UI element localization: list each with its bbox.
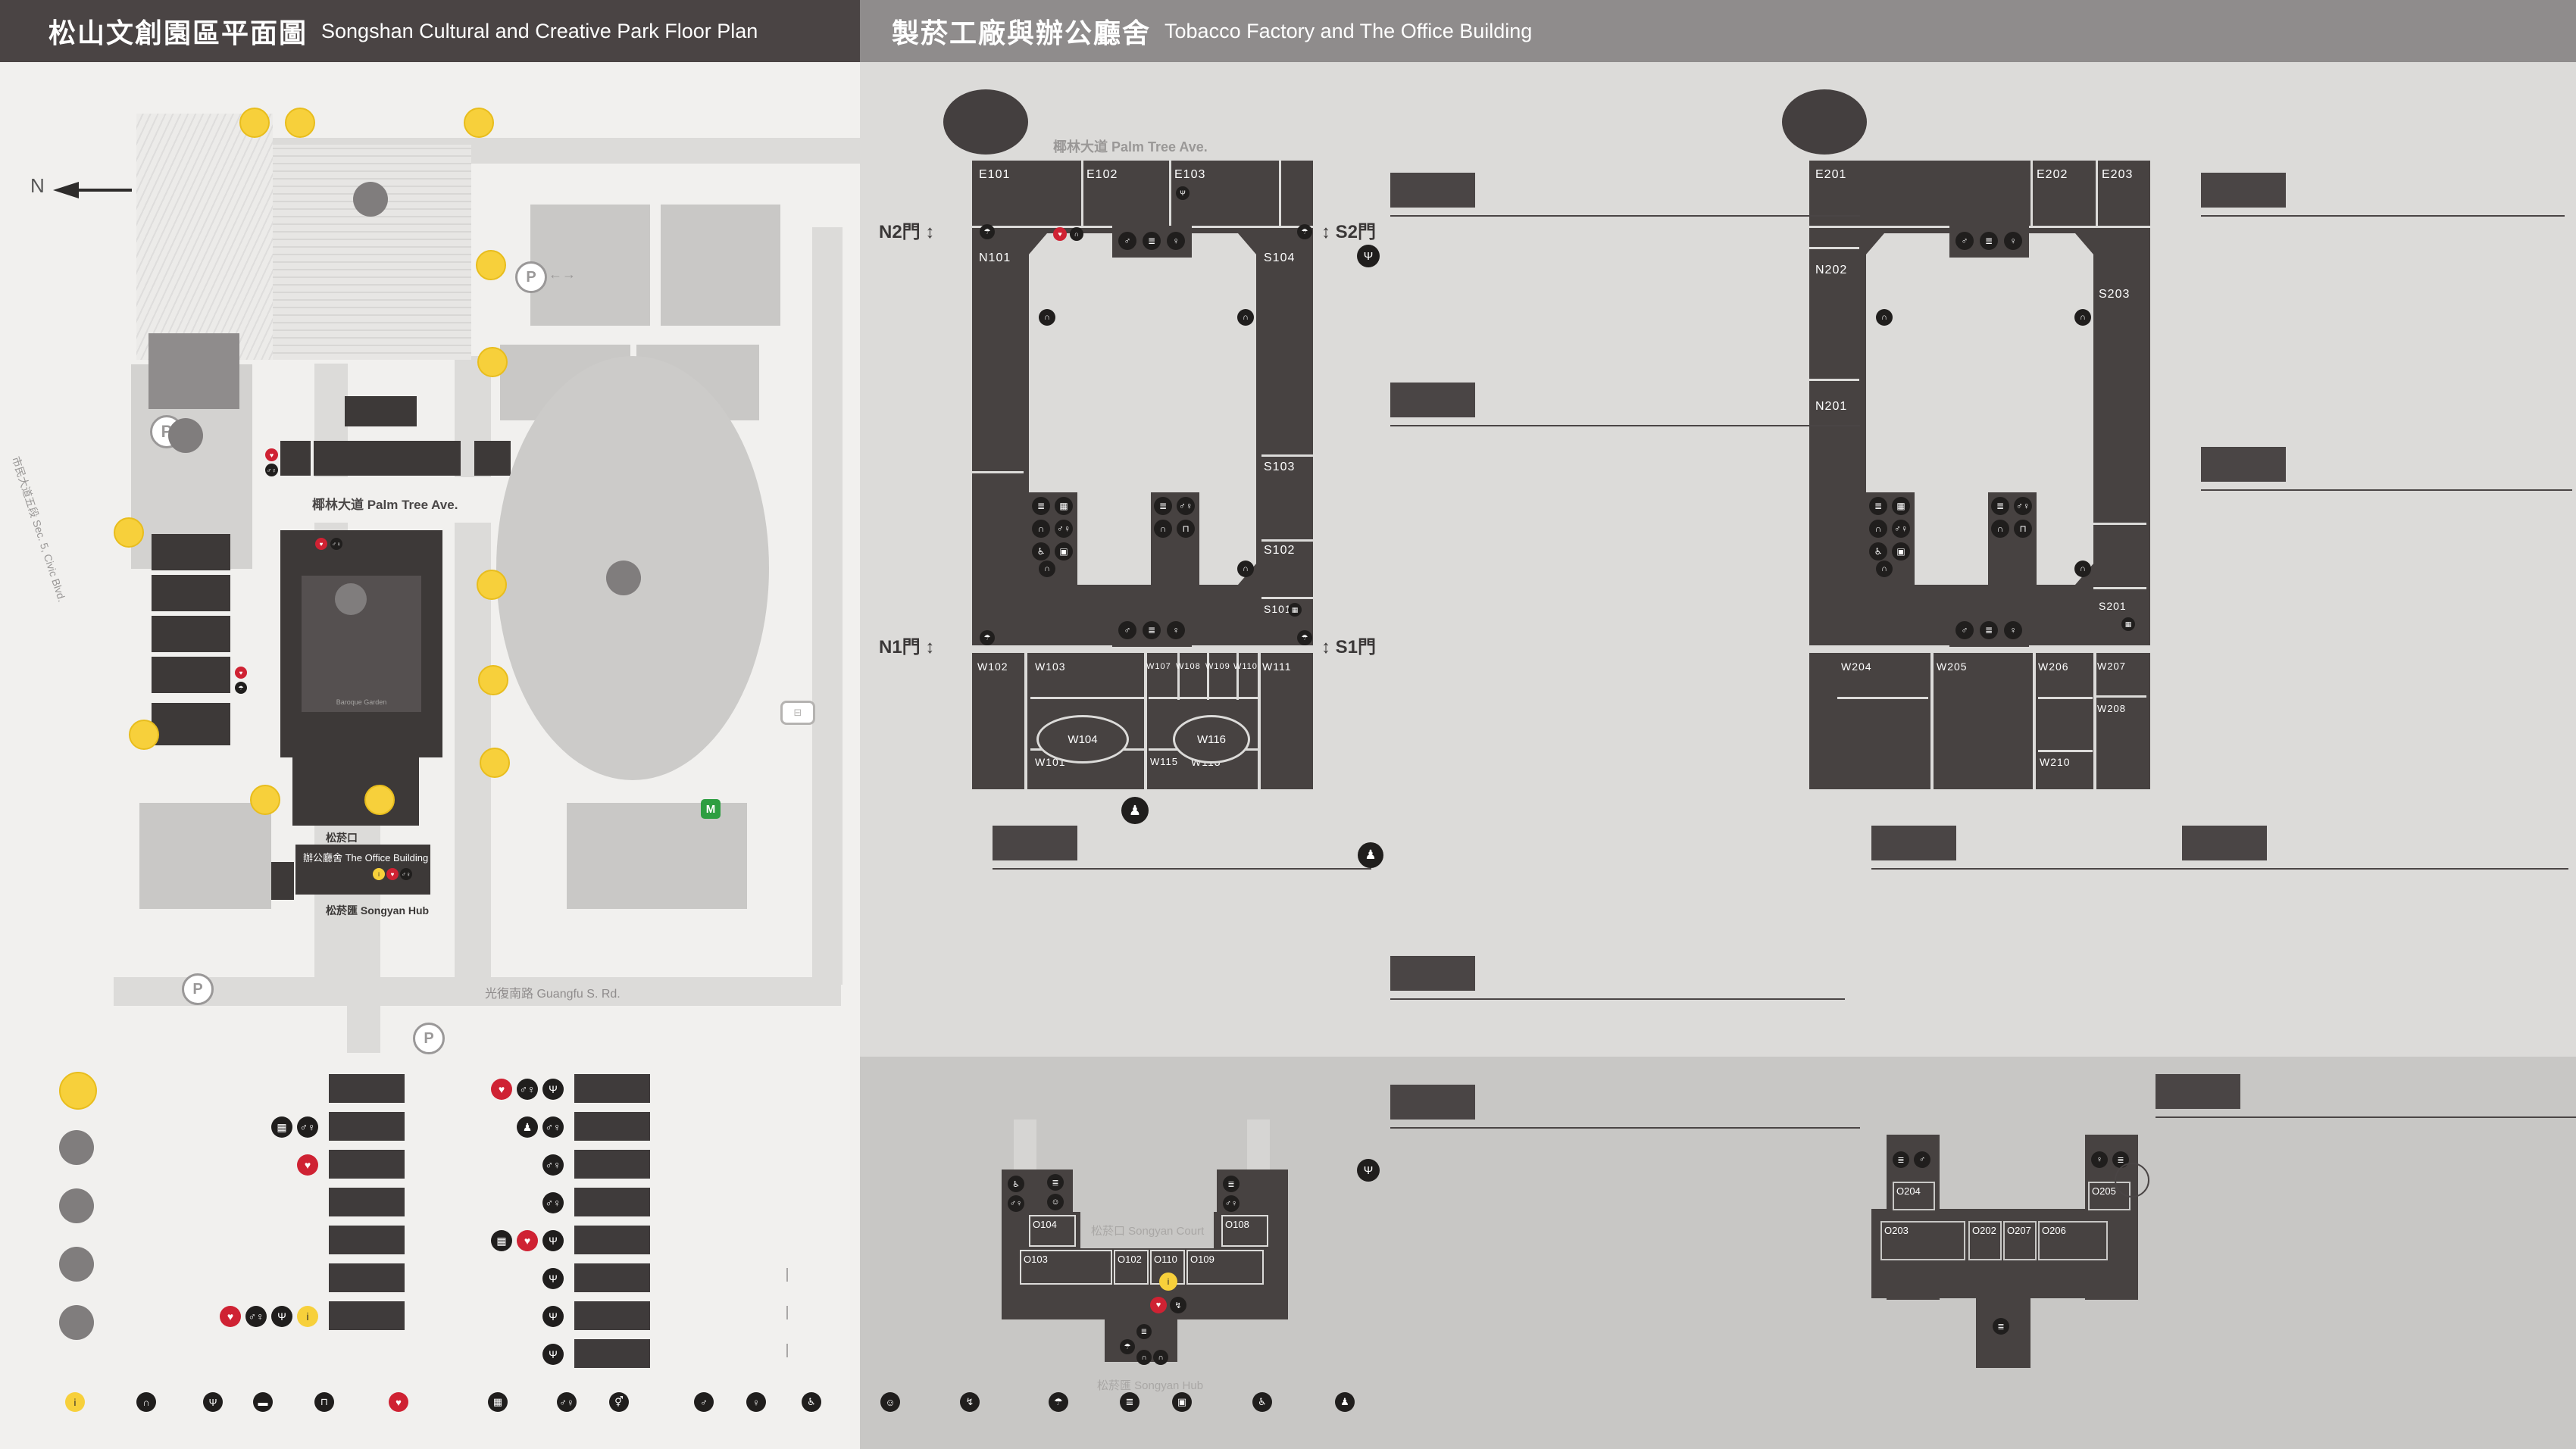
section-divider [1871, 868, 2190, 870]
accessible-toilet-icon: ♿ [1008, 1176, 1024, 1192]
section-divider [2201, 489, 2572, 491]
entry-code [1390, 521, 1519, 523]
entry-code [1390, 451, 1519, 453]
legend-box-A7W [574, 1112, 650, 1141]
toilet-icon: ♂♀ [1177, 497, 1195, 515]
accessible-toilet-icon: ♿ [802, 1392, 821, 1412]
room-W102: W102 [977, 660, 1008, 673]
plan-divider [1261, 539, 1313, 542]
womens-toilet-icon: ♀ [1167, 621, 1185, 639]
section-header [1390, 956, 1845, 991]
legend-bld-note-sep: ｜ [780, 1341, 794, 1360]
accessible-toilet-icon: ♿ [1032, 542, 1050, 561]
baggage-lockers-icon: ▦ [1892, 497, 1910, 515]
a6f2-room-O207: O207 [2003, 1221, 2037, 1260]
showtime-block [139, 803, 271, 909]
guangfu-label: 光復南路 Guangfu S. Rd. [485, 983, 621, 1001]
entry-code [1390, 1012, 1489, 1014]
section-header [2201, 447, 2572, 482]
toilet-icon: ♂♀ [400, 868, 412, 880]
entry-code [1390, 475, 1519, 477]
map-building-a2 [152, 657, 230, 693]
section-badge [1871, 826, 1956, 860]
room-S104: S104 [1264, 251, 1295, 265]
street-palm-1f: 椰林大道 Palm Tree Ave. [1053, 136, 1208, 156]
section-a6-1f: Ψ [1390, 1085, 1860, 1180]
mens-toilet-icon: ♂ [1914, 1151, 1930, 1168]
room-W103: W103 [1035, 660, 1066, 673]
legend-box-A8 [574, 1226, 650, 1254]
list-entry-W204–206 [2201, 503, 2572, 505]
list-entry-W101–103 [1390, 439, 1860, 441]
title-right-zh: 製菸工廠與辦公廳舍 [892, 11, 1151, 51]
plan-divider [1261, 597, 1313, 599]
legend-pin-a [59, 1130, 94, 1165]
room-W204: W204 [1841, 660, 1872, 673]
plan-divider [1081, 161, 1083, 226]
room-S201: S201 [2099, 600, 2127, 612]
compass-arrow-icon [53, 182, 79, 198]
entry-code [1871, 893, 1970, 895]
room-W110: W110 [1233, 662, 1258, 671]
plan-divider [1030, 697, 1144, 699]
room-W205: W205 [1937, 660, 1968, 673]
room-N202: N202 [1815, 264, 1847, 277]
legend-box-A2 [329, 1150, 405, 1179]
information-icon: i [65, 1392, 85, 1412]
gate-n2: N2門 ↕ [879, 217, 934, 243]
mini-trips-icon: ♟ [517, 1116, 538, 1138]
audio-tour-icon: ∩ [1070, 227, 1083, 241]
list-entry-W111 [1390, 497, 1860, 499]
section-badge [1390, 173, 1475, 208]
a6f1-slot-right [1247, 1120, 1270, 1173]
womens-toilet-icon: ♀ [2004, 232, 2022, 250]
entry-code [2156, 1130, 2284, 1132]
breastfeeding-room-icon: ☺ [880, 1392, 900, 1412]
legend-box-A3 [329, 1188, 405, 1216]
list-entry-W207 [2201, 516, 2572, 518]
room-W104: W104 [1036, 715, 1129, 764]
aed-icon: ♥ [386, 868, 399, 880]
room-W115: W115 [1150, 756, 1178, 767]
compass: N [30, 174, 152, 197]
floor-badge-1f [943, 89, 1028, 155]
list-entry-N101 [1390, 1012, 1845, 1014]
section-header [2201, 173, 2565, 208]
plan-divider [1279, 161, 1281, 226]
womens-toilet-icon: ♀ [2004, 621, 2022, 639]
plan-divider [2033, 653, 2036, 789]
gov-building-2 [661, 205, 780, 326]
section-a7-s [993, 826, 1371, 921]
list-entry-W210 [2201, 529, 2572, 531]
section-divider [1390, 998, 1845, 1000]
stairs-icon: ≣ [1136, 1324, 1152, 1339]
pin-c [353, 182, 388, 217]
room-W107: W107 [1146, 662, 1171, 671]
aed-icon: ♥ [265, 448, 278, 461]
a6f2-room-O206: O206 [2038, 1221, 2108, 1260]
map-building-a3 [152, 616, 230, 652]
title-left-en: Songshan Cultural and Creative Park Floo… [321, 20, 758, 43]
room-E203: E203 [2102, 168, 2133, 182]
section-header [1390, 383, 1860, 417]
room-S102: S102 [1264, 544, 1295, 557]
facility-accessible-toilet: ♿ [802, 1392, 827, 1412]
a6f2-room-O202: O202 [1968, 1221, 2002, 1260]
entry-code [2182, 893, 2281, 895]
a6f1-entry-O110 [1390, 1172, 1860, 1174]
toilet-icon: ♂♀ [517, 1079, 538, 1100]
map-building-a9 [314, 441, 461, 476]
facility-power-bank: ↯ [960, 1392, 985, 1412]
map-songyan-hub: 松菸匯 Songyan Hub [326, 903, 429, 918]
room-E202: E202 [2037, 168, 2068, 182]
parking-icon: P [182, 973, 214, 1005]
entrance-12 [480, 748, 510, 778]
legend-box-A5 [329, 1263, 405, 1292]
audio-tour-icon: ∩ [1237, 309, 1254, 326]
f-and-b-icon: Ψ [1357, 1159, 1380, 1182]
list-entry-W116 [1390, 521, 1860, 523]
list-entry-E202 [2201, 245, 2565, 247]
f-and-b-icon: Ψ [542, 1344, 564, 1365]
list-entry-E103: Ψ [1390, 243, 1860, 245]
pin-b [168, 418, 203, 453]
f-and-b-icon: Ψ [1176, 186, 1190, 200]
a6f1-entry-O109 [1390, 1163, 1860, 1166]
plan-divider [1236, 653, 1239, 700]
plan-divider [1144, 653, 1147, 789]
plan-divider [1149, 697, 1258, 699]
plan-divider [972, 471, 1024, 473]
list-entry-S203 [1871, 893, 2190, 895]
f-and-b-icon: Ψ [542, 1306, 564, 1327]
list-entry-S103 [993, 901, 1371, 904]
information-icon: i [1159, 1273, 1177, 1291]
audio-tour-icon: ∩ [1153, 1350, 1168, 1365]
plan-divider [1169, 161, 1171, 226]
aed-icon: ♥ [1053, 227, 1067, 241]
a6f2-header [2156, 1074, 2576, 1109]
a6f1-court-label: 松菸口 Songyan Court [1091, 1223, 1204, 1238]
parking-arrow: ←→ [549, 267, 576, 283]
aed-icon: ♥ [491, 1079, 512, 1100]
legend-box-A0 [329, 1074, 405, 1103]
toilet-icon: ♂♀ [1055, 520, 1073, 538]
road-zhongxiao [812, 227, 843, 985]
section-a7-s [1871, 826, 2190, 904]
north-label: N [30, 174, 45, 198]
room-W111: W111 [1262, 660, 1292, 673]
umbrella-rental-icon: ☂ [235, 682, 247, 694]
facility-womens-toilet: ♀ [746, 1392, 771, 1412]
plan-divider [2093, 695, 2146, 698]
power-bank-icon: ↯ [1170, 1297, 1186, 1313]
map-building-a10 [474, 441, 511, 476]
facility-drinking-fountain: ⊓ [314, 1392, 339, 1412]
section-header [1390, 173, 1860, 208]
baggage-lockers-icon: ▦ [271, 1116, 292, 1138]
audio-tour-icon: ∩ [1136, 1350, 1152, 1365]
drinking-fountain-icon: ⊓ [314, 1392, 334, 1412]
facility-aed: ♥ [389, 1392, 414, 1412]
section-a6-2f [2156, 1074, 2576, 1171]
list-entry-W109 [1390, 475, 1860, 477]
audio-tour-icon: ∩ [1039, 309, 1055, 326]
audio-tour-icon: ∩ [1032, 520, 1050, 538]
entrance-9 [477, 347, 508, 377]
audio-tour-icon: ∩ [1869, 520, 1887, 538]
room-W210: W210 [2040, 756, 2071, 768]
facility-mens-toilet: ♂ [694, 1392, 719, 1412]
drinking-fountain-icon: ⊓ [1177, 520, 1195, 538]
f-and-b-icon: Ψ [542, 1079, 564, 1100]
room-W116: W116 [1173, 715, 1250, 764]
page-title-right: 製菸工廠與辦公廳舍 Tobacco Factory and The Office… [860, 0, 2576, 62]
gate-s1: ↕ S1門 [1321, 632, 1376, 658]
stairs-icon: ≣ [1120, 1392, 1140, 1412]
entrance-4 [114, 517, 144, 548]
legend-pin-b [59, 1188, 94, 1223]
plan-divider [1809, 379, 1859, 381]
legend-box-A10 [574, 1301, 650, 1330]
wing-1f [972, 653, 1313, 789]
gov-building-1 [530, 205, 650, 326]
stairs-icon: ≣ [1980, 232, 1998, 250]
list-entry-W108 [1390, 463, 1860, 465]
f-and-b-icon: Ψ [271, 1306, 292, 1327]
goods-elevator-icon: ▣ [1172, 1392, 1192, 1412]
legend-box-A7N [574, 1188, 650, 1216]
umbrella-rental-icon: ☂ [1049, 1392, 1068, 1412]
entry-code [2201, 229, 2299, 231]
umbrella-rental-icon: ☂ [1297, 630, 1312, 645]
section-a7-e: Ψ [1390, 173, 1860, 258]
room-W108: W108 [1176, 662, 1201, 671]
goods-elevator-icon: ▣ [1055, 542, 1073, 561]
womens-toilet-icon: ♀ [2091, 1151, 2108, 1168]
stairs-icon: ≣ [1869, 497, 1887, 515]
section-divider [2182, 868, 2568, 870]
entry-code [2156, 1137, 2284, 1139]
a6f1-hub-label: 松菸匯 Songyan Hub [1097, 1377, 1203, 1393]
list-entry-W104 [1390, 451, 1860, 453]
toilet-icon: ♂♀ [245, 1306, 267, 1327]
information-icon: i [297, 1306, 318, 1327]
map-building-a5 [152, 534, 230, 570]
section-divider [2201, 215, 2565, 217]
section-a7-n [1390, 956, 1845, 1022]
map-building-a11 [345, 396, 417, 426]
entry-code [1390, 243, 1489, 245]
plan-divider [2093, 523, 2146, 525]
audio-tour-icon: ∩ [1039, 561, 1055, 577]
map-baroque-en: Baroque Garden [312, 698, 411, 706]
plan-divider [2093, 587, 2146, 589]
legend-entrance-mark [59, 1072, 97, 1110]
toilet-icon: ♂♀ [542, 1116, 564, 1138]
a6f1-room-O103: O103 [1020, 1250, 1112, 1285]
entry-code [2156, 1151, 2284, 1153]
baggage-lockers-icon: ▦ [1288, 603, 1302, 617]
legend-pin-c [59, 1247, 94, 1282]
a6f2-room-O204: O204 [1893, 1182, 1935, 1210]
gate-n1: N1門 ↕ [879, 632, 934, 658]
room-E103: E103 [1174, 168, 1205, 182]
audio-tour-icon: ∩ [2074, 309, 2091, 326]
baggage-lockers-icon: ▦ [488, 1392, 508, 1412]
stair-core-left-1f: ≣▦∩♂♀♿▣ [1029, 492, 1077, 595]
legend-box-A1 [329, 1112, 405, 1141]
a6f1-divider [1390, 1127, 1860, 1129]
stairs-icon: ≣ [1047, 1174, 1064, 1191]
entry-code [993, 882, 1091, 884]
list-entry-S201 [1871, 882, 2190, 884]
plan-divider [2030, 161, 2033, 226]
audio-tour-icon: ∩ [1154, 520, 1172, 538]
toilet-icon: ♂♀ [557, 1392, 577, 1412]
plan-divider [1930, 653, 1934, 789]
gate-notch-bottom-1f: ♂≣♀ [1112, 615, 1192, 647]
section-header [1871, 826, 2190, 860]
a6f1-room-O108: O108 [1221, 1215, 1268, 1247]
map-office-label: 辦公廳舍 The Office Building [303, 850, 428, 864]
entry-code [2201, 503, 2326, 505]
a6f2-badge [2156, 1074, 2240, 1109]
legend-box-A11 [574, 1339, 650, 1368]
entry-code [993, 901, 1091, 904]
title-right-en: Tobacco Factory and The Office Building [1165, 20, 1532, 43]
toilet-icon: ♂♀ [2014, 497, 2032, 515]
section-a7-e [2201, 173, 2565, 276]
a6f1-entry-O102 [1390, 1141, 1860, 1143]
a6f1-entry-O103–104 [1390, 1149, 1860, 1151]
plan-divider [1207, 653, 1209, 700]
room-W109: W109 [1205, 662, 1230, 671]
stairs-icon: ≣ [1032, 497, 1050, 515]
section-badge [1390, 956, 1475, 991]
plan-divider [2038, 750, 2093, 752]
all-gender-toilet-icon: ⚥ [609, 1392, 629, 1412]
f-and-b-icon: Ψ [542, 1230, 564, 1251]
stair-core-right-2f: ≣♂♀∩⊓ [1988, 492, 2037, 595]
map-building-a1 [152, 703, 230, 745]
umbrella-rental-icon: ☂ [980, 630, 995, 645]
a6f1-room-O109: O109 [1186, 1250, 1264, 1285]
legend-box-A6 [329, 1301, 405, 1330]
audio-tour-icon: ∩ [2074, 561, 2091, 577]
gate-s2: ↕ S2門 [1321, 217, 1376, 243]
a6f2-entry-O204 [2156, 1144, 2576, 1146]
entrance-8 [476, 250, 506, 280]
entry-code [1871, 882, 1970, 884]
floor-prefix-circle [2115, 1163, 2149, 1198]
audio-tour-icon: ∩ [1237, 561, 1254, 577]
entrance-5 [239, 108, 270, 138]
facility-goods-elevator: ▣ [1172, 1392, 1197, 1412]
title-left-zh: 松山文創園區平面圖 [48, 11, 308, 51]
facility-all-gender-toilet: ⚥ [609, 1392, 634, 1412]
umbrella-rental-icon: ☂ [1297, 224, 1312, 239]
information-icon: i [373, 868, 385, 880]
list-entry-W113 [1390, 509, 1860, 511]
entry-code [2156, 1144, 2284, 1146]
mens-toilet-icon: ♂ [1955, 621, 1974, 639]
road-guangfu [114, 977, 841, 1006]
accessible-elevator-icon: ♿ [1252, 1392, 1272, 1412]
entry-code [2156, 1157, 2284, 1160]
f-and-b-icon: Ψ [203, 1392, 223, 1412]
entry-code [2201, 245, 2299, 247]
entry-code [2182, 882, 2281, 884]
room-W207: W207 [2097, 660, 2126, 672]
list-entry-S101 [993, 882, 1371, 884]
entrance-10 [477, 570, 507, 600]
audio-tour-icon: ∩ [136, 1392, 156, 1412]
entrance-11 [478, 665, 508, 695]
room-N101: N101 [979, 251, 1011, 265]
section-divider [1390, 425, 1860, 426]
gate-notch-bottom-2f: ♂≣♀ [1949, 615, 2029, 647]
f-and-b-icon: Ψ [1357, 245, 1380, 267]
entry-code [1390, 439, 1519, 441]
list-entry-N202 [2182, 893, 2568, 895]
list-entry-E101 [1390, 229, 1860, 231]
power-bank-icon: ↯ [960, 1392, 980, 1412]
room-E102: E102 [1086, 168, 1118, 182]
stairs-icon: ≣ [1143, 232, 1161, 250]
goods-elevator-icon: ▣ [1892, 542, 1910, 561]
legend-bld-note-sep: ｜ [780, 1303, 794, 1323]
a6f2-entry-O206–207 [2156, 1157, 2576, 1160]
list-entry-N201 [2182, 882, 2568, 884]
baggage-lockers-icon: ▦ [1055, 497, 1073, 515]
a6f2-entry-O302 [2156, 1164, 2576, 1166]
section-badge [1390, 383, 1475, 417]
gate-notch-top-2f: ♂≣♀ [1949, 226, 2029, 258]
entrance-2 [250, 785, 280, 815]
section-header [2182, 826, 2568, 860]
stairs-icon: ≣ [1991, 497, 2009, 515]
mini-trips-icon: ♟ [1121, 797, 1149, 824]
plan-divider [2096, 161, 2098, 226]
a6f2-entry-O202 [2156, 1130, 2576, 1132]
aed-icon: ♥ [297, 1154, 318, 1176]
facility-smoking-area: ▬ [253, 1392, 278, 1412]
plan-divider [1024, 653, 1027, 789]
map-a7w-block [292, 757, 419, 826]
mrt-logo-icon: M [701, 799, 721, 819]
entry-code [1390, 1172, 1519, 1174]
list-entry-S102 [993, 892, 1371, 894]
plan-divider [1261, 454, 1313, 457]
entrance-6 [285, 108, 315, 138]
stairs-icon: ≣ [1993, 1318, 2009, 1335]
mens-toilet-icon: ♂ [694, 1392, 714, 1412]
facility-f-and-b: Ψ [203, 1392, 228, 1412]
toilet-icon: ♂♀ [265, 464, 278, 476]
entrance-7 [464, 108, 494, 138]
toilet-icon: ♂♀ [1008, 1195, 1024, 1212]
legend-bld-note-sep: ｜ [780, 1265, 794, 1285]
garden-city-block [567, 803, 747, 909]
room-E101: E101 [979, 168, 1010, 182]
parking-icon: P [515, 261, 547, 293]
wing-2f [1809, 653, 2150, 789]
list-entry-E203 [2201, 261, 2565, 263]
